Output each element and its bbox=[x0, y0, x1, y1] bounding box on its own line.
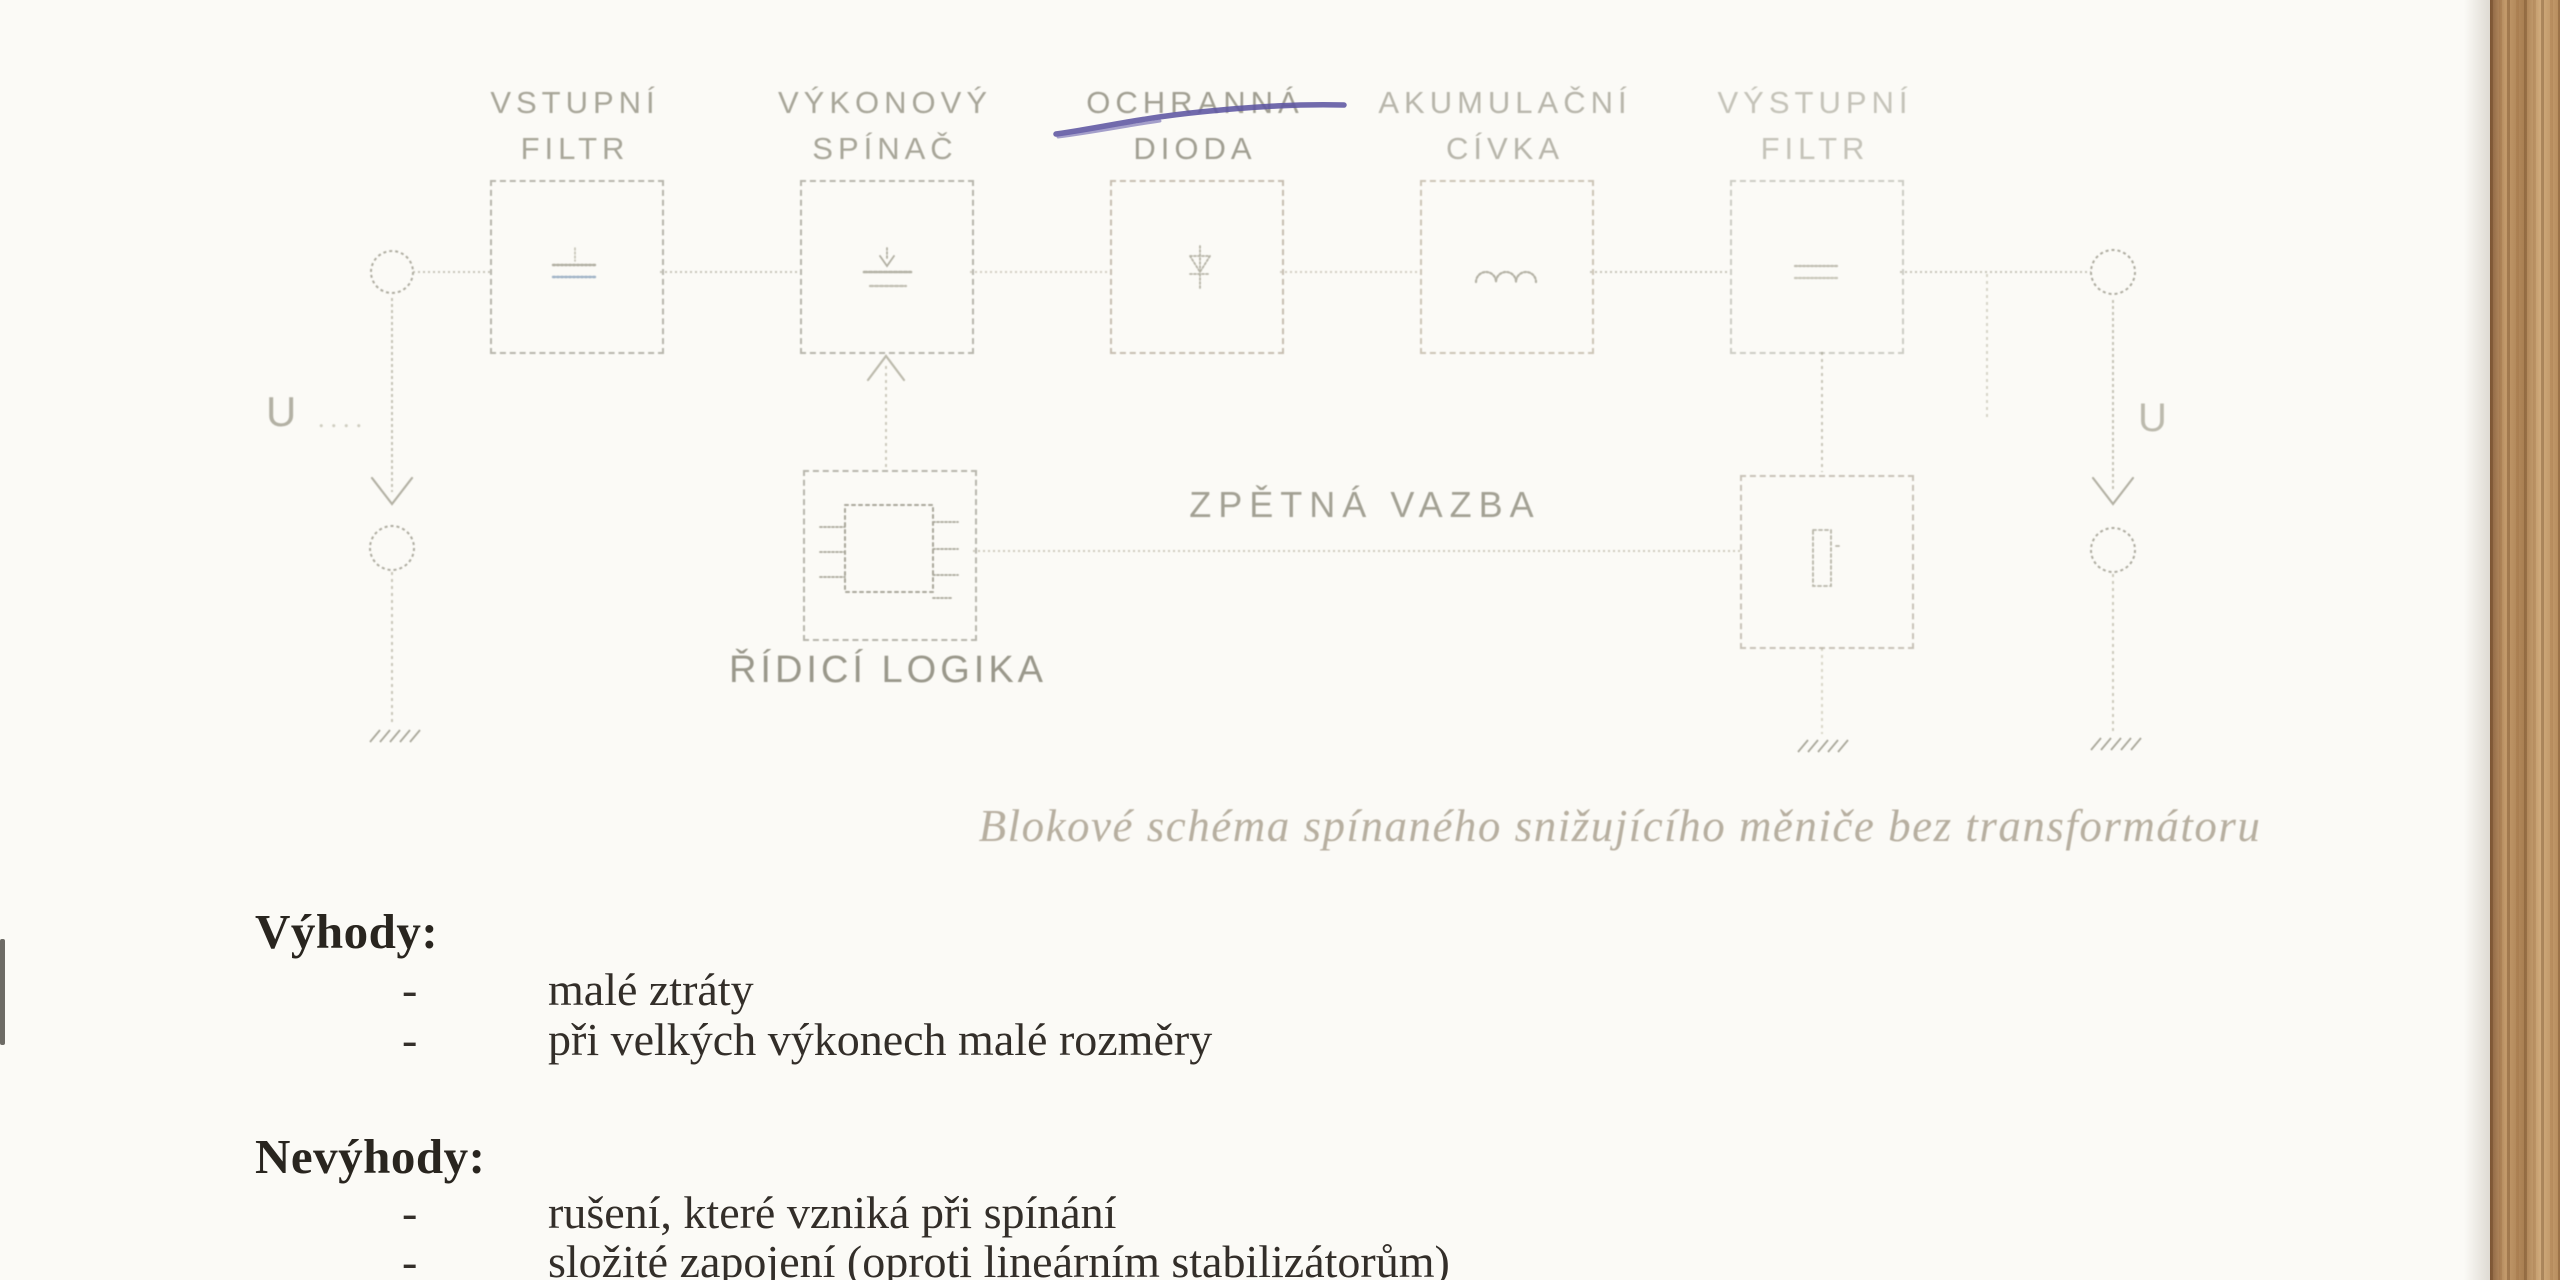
list-item: -při velkých výkonech malé rozměry bbox=[402, 1013, 1212, 1066]
advantages-heading: Výhody: bbox=[255, 903, 438, 960]
advantage-text: malé ztráty bbox=[548, 964, 754, 1015]
pen-annotation-layer bbox=[0, 0, 2560, 900]
advantage-text: při velkých výkonech malé rozměry bbox=[548, 1014, 1212, 1065]
disadvantage-text: složité zapojení (oproti lineárním stabi… bbox=[548, 1236, 1450, 1280]
list-item: -složité zapojení (oproti lineárním stab… bbox=[402, 1235, 1450, 1280]
disadvantage-text: rušení, které vzniká při spínání bbox=[548, 1187, 1116, 1238]
list-item: -rušení, které vzniká při spínání bbox=[402, 1186, 1116, 1239]
list-bullet: - bbox=[402, 1235, 548, 1280]
list-item: -malé ztráty bbox=[402, 963, 754, 1016]
scan-edge-artifact bbox=[0, 939, 5, 1045]
list-bullet: - bbox=[402, 1186, 548, 1239]
list-bullet: - bbox=[402, 963, 548, 1016]
scanned-page: VSTUPNÍ FILTR VÝKONOVÝ SPÍNAČ OCHRANNÁ D… bbox=[0, 0, 2560, 1280]
disadvantages-heading: Nevýhody: bbox=[255, 1128, 485, 1185]
list-bullet: - bbox=[402, 1013, 548, 1066]
